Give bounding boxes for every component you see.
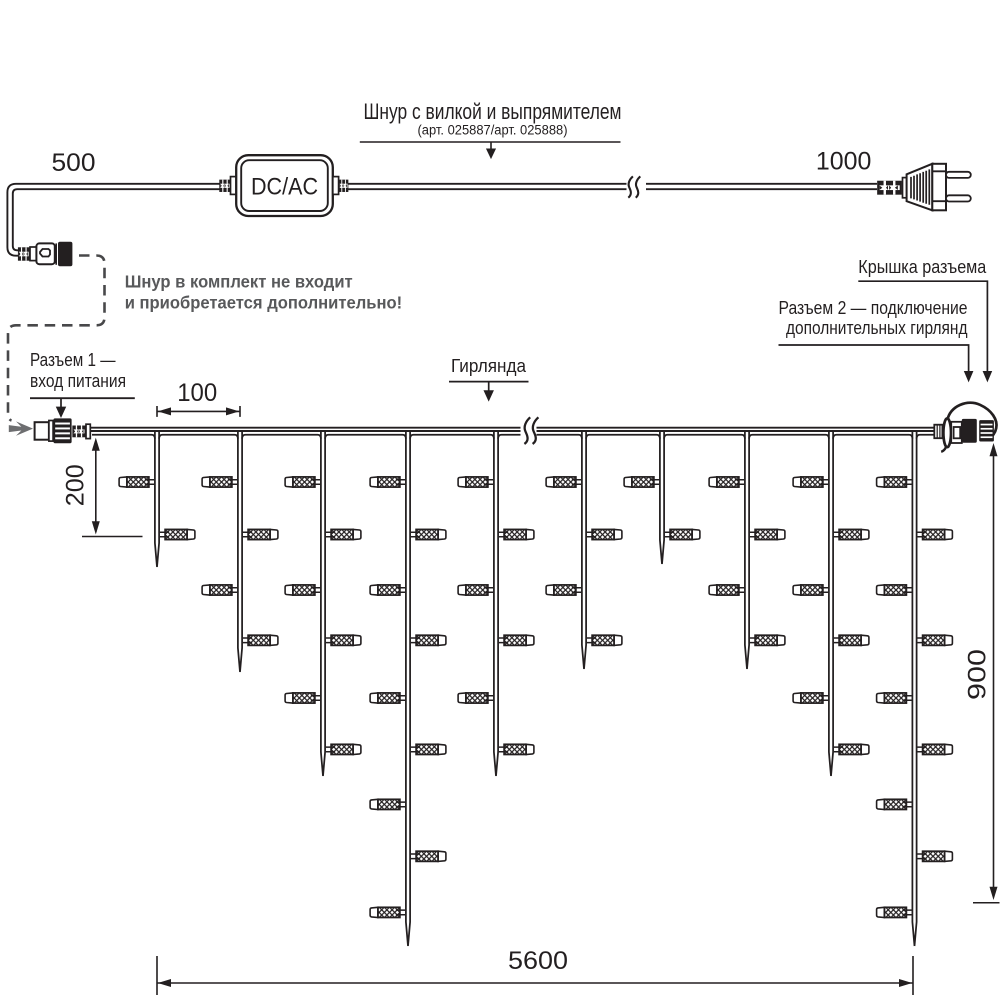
svg-text:1000: 1000	[816, 147, 872, 175]
svg-text:900: 900	[964, 649, 992, 700]
svg-text:дополнительных гирлянд: дополнительных гирлянд	[786, 318, 968, 338]
svg-text:Крышка разъема: Крышка разъема	[858, 257, 987, 277]
svg-text:(арт. 025887/арт. 025888): (арт. 025887/арт. 025888)	[418, 123, 568, 138]
svg-text:Гирлянда: Гирлянда	[451, 356, 527, 376]
svg-text:Разъем 2 — подключение: Разъем 2 — подключение	[779, 298, 968, 318]
svg-text:100: 100	[177, 379, 217, 407]
svg-text:Шнур в комплект не входит: Шнур в комплект не входит	[125, 272, 353, 292]
svg-text:Шнур с вилкой и выпрямителем: Шнур с вилкой и выпрямителем	[364, 99, 622, 124]
svg-text:и приобретается дополнительно!: и приобретается дополнительно!	[125, 293, 403, 313]
svg-text:5600: 5600	[508, 947, 568, 975]
svg-text:DC/AC: DC/AC	[251, 173, 318, 200]
svg-text:200: 200	[62, 464, 90, 506]
svg-text:500: 500	[52, 149, 96, 177]
svg-text:вход питания: вход питания	[30, 371, 126, 391]
svg-text:Разъем 1 —: Разъем 1 —	[30, 350, 116, 370]
